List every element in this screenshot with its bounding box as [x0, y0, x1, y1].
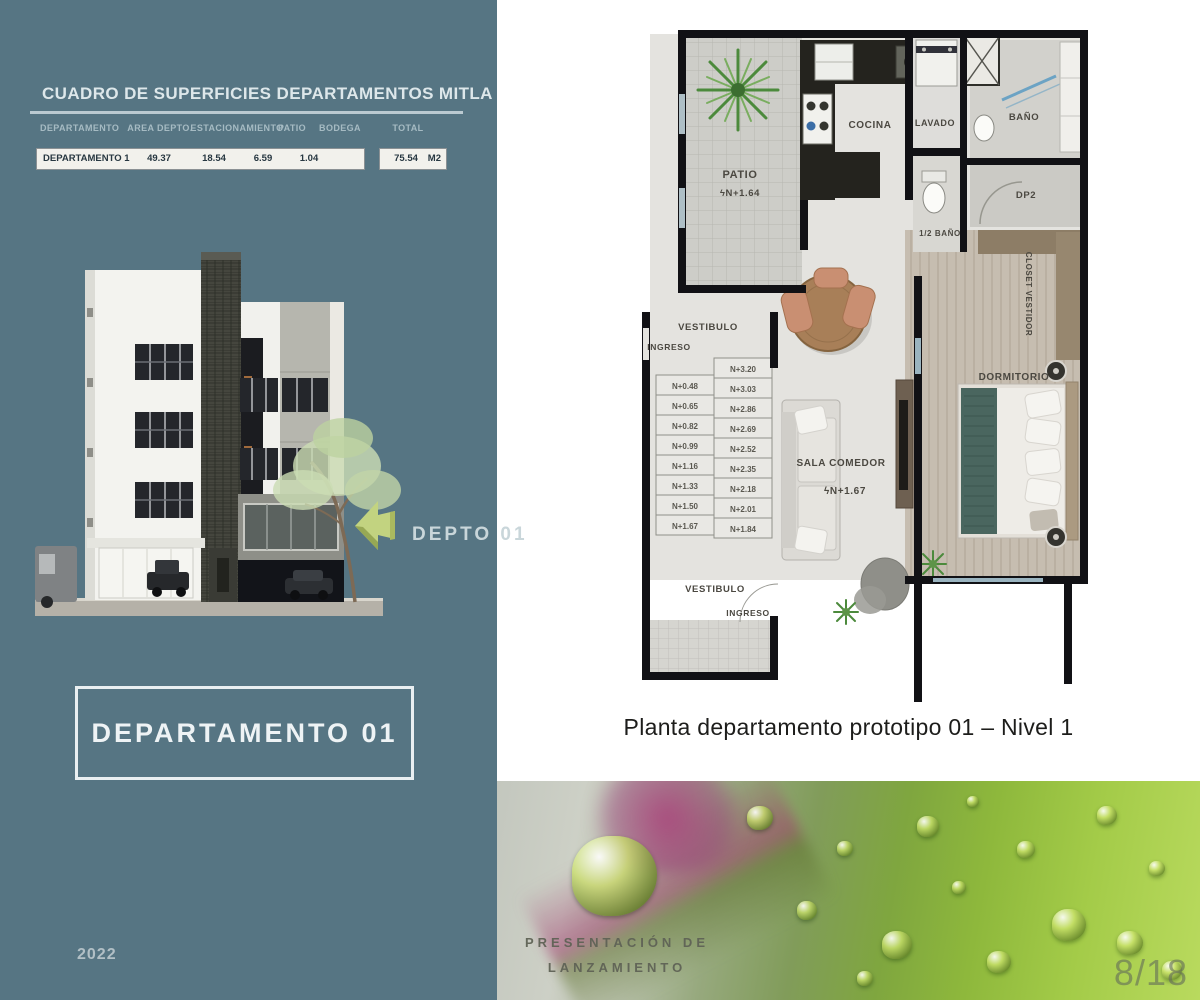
water-droplet	[1017, 841, 1035, 858]
slide-title: DEPARTAMENTO 01	[91, 718, 397, 749]
table-header-bodega: BODEGA	[319, 123, 361, 133]
room-label-cocina: COCINA	[848, 120, 891, 131]
room-label-ingreso-sup: INGRESO	[647, 342, 690, 352]
svg-text:N+2.69: N+2.69	[730, 425, 757, 434]
row-name: DEPARTAMENTO 1	[43, 153, 130, 164]
building-elevation-drawing	[35, 248, 435, 628]
svg-text:N+1.84: N+1.84	[730, 525, 757, 534]
svg-text:N+2.86: N+2.86	[730, 405, 757, 414]
svg-text:N+1.33: N+1.33	[672, 482, 699, 491]
water-droplet	[882, 931, 912, 959]
water-droplet	[1097, 806, 1117, 825]
patio-level-label: ϟN+1.64	[720, 188, 760, 199]
room-label-vestibulo-inf: VESTIBULO	[685, 584, 745, 595]
presentation-slide: CUADRO DE SUPERFICIES DEPARTAMENTOS MITL…	[0, 0, 1200, 1000]
floor-plan: N+0.48 N+0.65 N+0.82 N+0.99 N+1.16 N+1.3…	[628, 28, 1092, 704]
table-row: DEPARTAMENTO 1 49.37 18.54 6.59 1.04	[36, 148, 365, 170]
surface-table-title: CUADRO DE SUPERFICIES DEPARTAMENTOS MITL…	[42, 84, 493, 104]
room-label-dormitorio: DORMITORIO	[979, 372, 1050, 383]
room-label-bano: BAÑO	[1009, 112, 1039, 123]
total-value: 75.54	[394, 153, 418, 164]
table-header-estacionamiento: ESTACIONAMIENTO	[190, 123, 283, 133]
water-droplet	[797, 901, 817, 920]
water-droplet	[987, 951, 1011, 973]
floor-plan-caption: Planta departamento prototipo 01 – Nivel…	[497, 714, 1200, 741]
table-divider	[30, 111, 463, 114]
svg-text:N+0.82: N+0.82	[672, 422, 699, 431]
table-total: 75.54 M2	[379, 148, 447, 170]
footer-line2: LANZAMIENTO	[517, 956, 717, 981]
room-label-patio: PATIO	[723, 169, 758, 181]
left-panel: CUADRO DE SUPERFICIES DEPARTAMENTOS MITL…	[0, 0, 497, 1000]
toilet	[923, 183, 945, 213]
water-droplet	[1052, 909, 1086, 941]
room-label-vestibulo-sup: VESTIBULO	[678, 322, 738, 333]
svg-text:N+1.50: N+1.50	[672, 502, 699, 511]
sala-level-label: ϟN+1.67	[824, 486, 866, 497]
footer-line1: PRESENTACIÓN DE	[517, 931, 717, 956]
stove	[803, 94, 832, 144]
svg-text:N+1.16: N+1.16	[672, 462, 699, 471]
svg-text:N+3.20: N+3.20	[730, 365, 757, 374]
row-estacionamiento: 18.54	[202, 153, 226, 164]
water-droplet	[1149, 861, 1165, 876]
svg-text:N+0.99: N+0.99	[672, 442, 699, 451]
patio-plant	[698, 50, 778, 130]
bath-sink	[974, 115, 994, 141]
bed	[958, 382, 1078, 540]
window-band	[135, 344, 193, 380]
water-droplet	[837, 841, 853, 856]
page-number: 8/18	[1114, 952, 1188, 994]
row-bodega: 1.04	[300, 153, 319, 164]
footer-text: PRESENTACIÓN DE LANZAMIENTO	[517, 931, 717, 980]
row-patio: 6.59	[254, 153, 273, 164]
leaf-photo: PRESENTACIÓN DE LANZAMIENTO 8/18	[497, 781, 1200, 1000]
room-label-lavado: LAVADO	[915, 118, 955, 128]
slide-title-box: DEPARTAMENTO 01	[75, 686, 414, 780]
water-droplet	[952, 881, 966, 894]
svg-text:N+2.35: N+2.35	[730, 465, 757, 474]
room-label-closet: CLOSET VESTIDOR	[1024, 252, 1033, 337]
row-area: 49.37	[147, 153, 171, 164]
total-unit: M2	[428, 153, 441, 164]
room-label-ingreso-inf: INGRESO	[726, 608, 769, 618]
depto-arrow-icon	[353, 492, 397, 558]
water-droplet	[967, 796, 979, 807]
svg-text:N+0.65: N+0.65	[672, 402, 699, 411]
svg-text:N+0.48: N+0.48	[672, 382, 699, 391]
depto-callout-label: DEPTO 01	[412, 524, 528, 546]
room-label-medio-bano: 1/2 BAÑO	[919, 229, 961, 238]
svg-text:N+2.01: N+2.01	[730, 505, 757, 514]
table-header-total: TOTAL	[392, 123, 423, 133]
svg-text:N+1.67: N+1.67	[672, 522, 699, 531]
water-droplet	[857, 971, 873, 986]
svg-text:N+3.03: N+3.03	[730, 385, 757, 394]
room-label-dp2: DP2	[1016, 190, 1036, 201]
sofa	[782, 400, 840, 560]
room-label-sala: SALA COMEDOR	[796, 458, 885, 469]
year-label: 2022	[77, 946, 117, 964]
table-header-area: AREA DEPTO.	[127, 123, 192, 133]
svg-text:N+2.18: N+2.18	[730, 485, 757, 494]
table-header-departamento: DEPARTAMENTO	[40, 123, 119, 133]
svg-text:N+2.52: N+2.52	[730, 445, 757, 454]
water-droplet	[917, 816, 939, 837]
table-header-patio: PATIO	[278, 123, 306, 133]
